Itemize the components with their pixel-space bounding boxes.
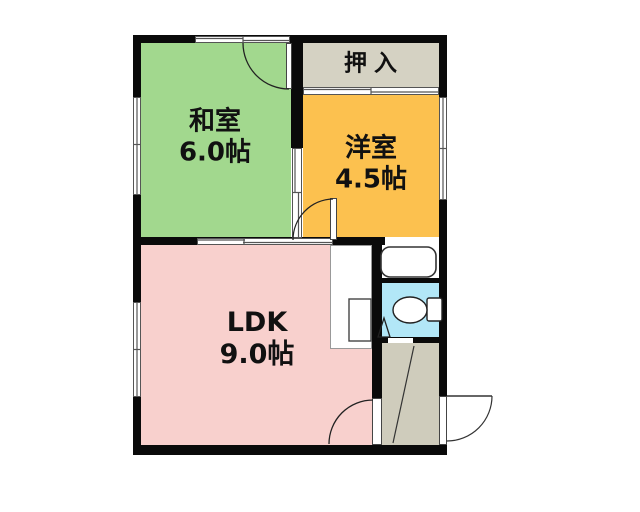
toilet-door-triangle-icon <box>378 318 390 337</box>
door-arc-washitsu <box>243 43 289 89</box>
door-arc-entrance <box>447 396 492 441</box>
label-ldk-name: LDK <box>220 307 295 339</box>
label-washitsu-size: 6.0帖 <box>179 137 251 168</box>
linework-overlay <box>0 0 640 512</box>
label-washitsu-name: 和室 <box>179 106 251 137</box>
door-arc-ldk <box>329 400 373 444</box>
floor-plan: 押入 和室 6.0帖 洋室 4.5帖 LDK 9.0帖 <box>0 0 640 512</box>
label-youshitsu-name: 洋室 <box>335 133 407 164</box>
label-oshiire: 押入 <box>344 50 404 77</box>
genkan-step-line <box>393 346 414 443</box>
label-ldk-size: 9.0帖 <box>220 339 295 371</box>
bathtub-icon <box>381 247 436 277</box>
label-youshitsu: 洋室 4.5帖 <box>335 133 407 194</box>
label-washitsu: 和室 6.0帖 <box>179 106 251 167</box>
toilet-tank-icon <box>427 298 442 321</box>
label-youshitsu-size: 4.5帖 <box>335 164 407 195</box>
label-ldk: LDK 9.0帖 <box>220 307 295 371</box>
kitchen-sink-icon <box>349 299 371 341</box>
toilet-bowl-icon <box>393 297 427 323</box>
